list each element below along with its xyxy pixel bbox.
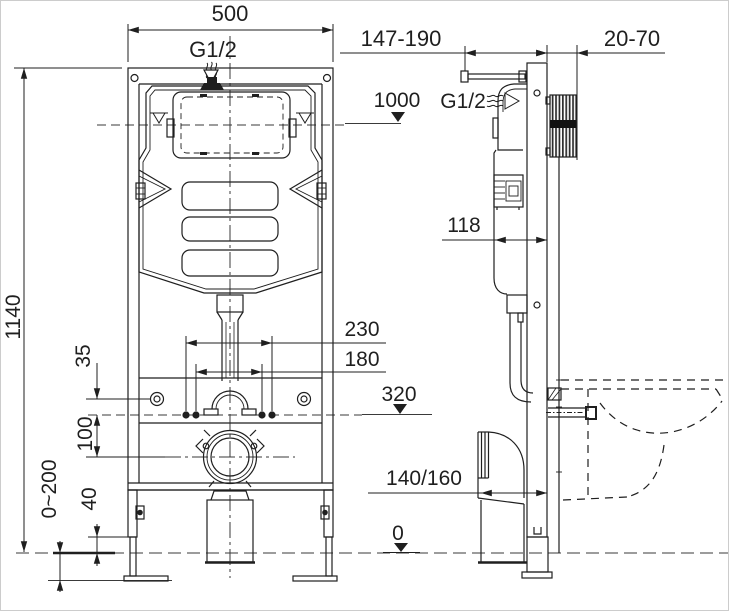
label-inlet-top: G1/2 — [189, 37, 237, 62]
flush-plate — [546, 95, 576, 157]
label-bracket-range: 147-190 — [361, 26, 442, 51]
label-plate-offset: 35 — [72, 344, 95, 367]
label-inlet-height: 1000 — [374, 89, 421, 112]
fixing-hole-2 — [193, 412, 199, 418]
label-drain-offset: 140/160 — [386, 467, 462, 490]
label-fixing-span-inner: 180 — [344, 348, 379, 371]
fixing-hole-3 — [259, 412, 265, 418]
label-wall-clearance: 20-70 — [604, 26, 660, 51]
label-frame-height: 1140 — [2, 294, 25, 339]
label-frame-width: 500 — [212, 1, 249, 26]
fixing-hole-4 — [269, 412, 275, 418]
label-leg-adjust: 0~200 — [38, 460, 61, 519]
label-inlet-side: G1/2 — [440, 90, 486, 113]
label-fixing-span-outer: 230 — [344, 318, 379, 341]
label-floor-level: 0 — [392, 522, 404, 545]
label-outlet-drop: 100 — [74, 416, 97, 451]
technical-drawing-sheet: 500 G1/2 147-190 20-70 1000 G1/2 118 230… — [0, 0, 729, 611]
label-frame-foot-gap: 40 — [78, 487, 101, 510]
sheet-border — [1, 1, 729, 611]
label-cistern-depth: 118 — [447, 214, 480, 237]
fixing-hole-1 — [183, 412, 189, 418]
label-fixing-height: 320 — [381, 383, 416, 406]
installation-frame-drawing: 500 G1/2 147-190 20-70 1000 G1/2 118 230… — [0, 0, 729, 611]
